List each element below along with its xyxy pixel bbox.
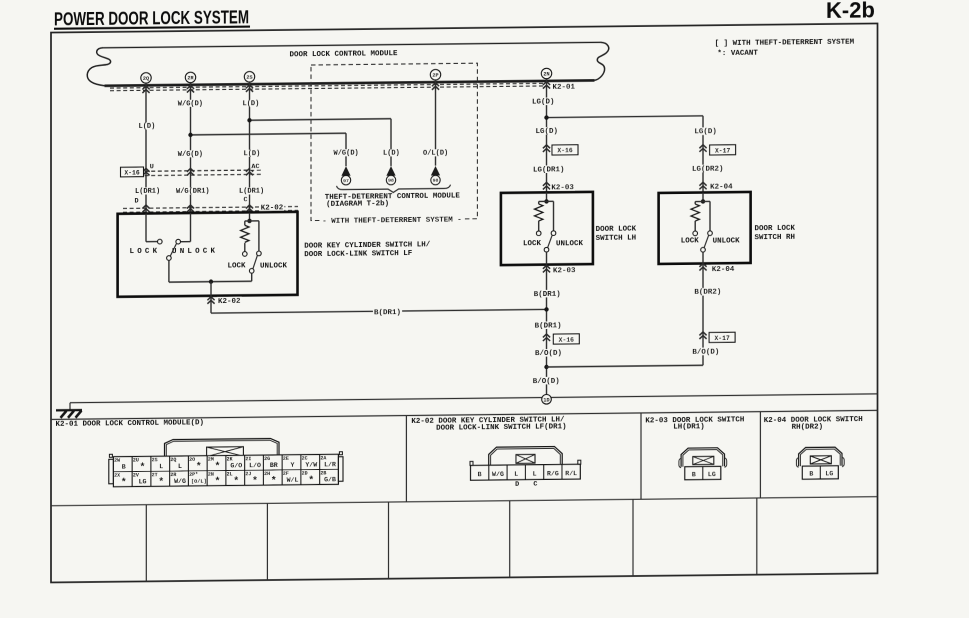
svg-text:2P*: 2P* <box>189 472 198 478</box>
svg-text:*: * <box>215 476 221 488</box>
svg-text:2N: 2N <box>543 71 549 77</box>
svg-text:B: B <box>692 471 696 478</box>
svg-text:W/L: W/L <box>287 477 299 484</box>
svg-text:2G: 2G <box>264 456 270 462</box>
svg-text:B/O(D): B/O(D) <box>533 378 560 386</box>
svg-text:W/G(D): W/G(D) <box>178 151 203 159</box>
svg-text:W/G(D): W/G(D) <box>334 150 359 158</box>
svg-text:LG: LG <box>825 470 833 477</box>
svg-text:G/O: G/O <box>230 463 242 470</box>
svg-text:K2-01: K2-01 <box>553 84 576 92</box>
svg-text:X-17: X-17 <box>714 335 730 342</box>
svg-text:B(DR1): B(DR1) <box>534 291 561 299</box>
svg-text:W/G: W/G <box>174 478 186 485</box>
svg-text:LOCK: LOCK <box>130 248 161 256</box>
svg-text:R/L: R/L <box>565 470 577 477</box>
svg-text:*: * <box>233 476 239 488</box>
svg-text:LOCK: LOCK <box>681 237 700 245</box>
svg-text:[O/L]: [O/L] <box>191 479 207 485</box>
svg-text:LG(D): LG(D) <box>536 128 559 136</box>
svg-text:*: * <box>271 475 277 487</box>
svg-text:LOCK: LOCK <box>523 240 542 248</box>
svg-text:W/G(DR1): W/G(DR1) <box>176 188 210 196</box>
svg-text:L/R: L/R <box>324 462 336 469</box>
svg-text:B: B <box>122 464 126 471</box>
svg-text:L(D): L(D) <box>244 150 261 158</box>
svg-text:2R: 2R <box>187 75 194 81</box>
svg-text:D: D <box>515 481 519 489</box>
svg-text:*: * <box>158 477 164 489</box>
svg-text:LG(D): LG(D) <box>532 98 555 106</box>
svg-text:DOOR LOCK CONTROL MODULE: DOOR LOCK CONTROL MODULE <box>289 50 398 59</box>
svg-text:BR: BR <box>270 462 278 469</box>
svg-text:- WITH THEFT-DETERRENT SYSTEM: - WITH THEFT-DETERRENT SYSTEM - <box>322 216 462 226</box>
svg-text:B(DR2): B(DR2) <box>694 289 721 297</box>
svg-text:SWITCH RH: SWITCH RH <box>755 234 796 242</box>
svg-text:L(D): L(D) <box>139 123 156 131</box>
svg-text:LG(DR1): LG(DR1) <box>533 166 565 174</box>
svg-text:2O: 2O <box>189 457 195 463</box>
svg-text:2V: 2V <box>133 472 139 478</box>
svg-text:L(DR1): L(DR1) <box>135 188 160 196</box>
svg-text:2Q: 2Q <box>170 457 176 463</box>
svg-text:L: L <box>159 463 163 470</box>
svg-text:X-16: X-16 <box>557 147 573 154</box>
svg-text:2W: 2W <box>114 457 120 463</box>
svg-text:[ ] WITH THEFT-DETERRENT SYSTE: [ ] WITH THEFT-DETERRENT SYSTEM <box>715 39 855 49</box>
svg-text:U: U <box>150 163 154 171</box>
svg-text:2S: 2S <box>246 75 252 81</box>
svg-text:B(DR1): B(DR1) <box>535 322 562 330</box>
svg-text:X-17: X-17 <box>715 147 731 154</box>
svg-text:98: 98 <box>388 178 394 184</box>
svg-text:LOCK: LOCK <box>228 262 247 270</box>
svg-text:2D: 2D <box>302 470 308 476</box>
svg-text:2N: 2N <box>208 471 214 477</box>
svg-text:L: L <box>178 463 182 470</box>
svg-text:DOOR LOCK-LINK SWITCH LF: DOOR LOCK-LINK SWITCH LF <box>304 250 413 259</box>
svg-text:2B: 2B <box>320 470 326 476</box>
svg-text:K2-02: K2-02 <box>218 298 241 306</box>
svg-text:2L: 2L <box>227 471 233 477</box>
svg-text:L: L <box>514 471 518 478</box>
svg-text:O/L(D): O/L(D) <box>423 150 448 158</box>
svg-text:X-16: X-16 <box>124 169 140 176</box>
svg-text:*: * <box>215 461 221 473</box>
svg-text:C: C <box>533 481 537 489</box>
svg-text:K2-04: K2-04 <box>710 183 733 191</box>
svg-text:LG(DR2): LG(DR2) <box>692 165 724 173</box>
svg-text:R/G: R/G <box>547 470 559 477</box>
svg-text:2J: 2J <box>245 471 251 477</box>
svg-text:SWITCH LH: SWITCH LH <box>596 234 637 242</box>
svg-text:L: L <box>533 471 537 478</box>
svg-text:K2-04: K2-04 <box>712 266 735 274</box>
svg-text:2C: 2C <box>302 455 308 461</box>
svg-text:LH(DR1): LH(DR1) <box>673 423 705 431</box>
svg-text:W/G: W/G <box>492 471 504 478</box>
svg-text:Y: Y <box>291 462 295 469</box>
svg-text:B/O(D): B/O(D) <box>535 350 562 358</box>
svg-text:DOOR LOCK-LINK SWITCH LF(DR1): DOOR LOCK-LINK SWITCH LF(DR1) <box>436 423 567 432</box>
svg-text:2R: 2R <box>170 472 176 478</box>
svg-text:*: VACANT: *: VACANT <box>717 50 758 58</box>
svg-text:(DIAGRAM T-2b): (DIAGRAM T-2b) <box>326 200 389 209</box>
svg-text:1D: 1D <box>543 397 549 403</box>
svg-text:*: * <box>121 477 127 489</box>
svg-text:B: B <box>809 471 813 478</box>
svg-text:2K: 2K <box>227 456 233 462</box>
svg-text:97: 97 <box>343 178 349 184</box>
svg-text:K2-01 DOOR LOCK CONTROL MODULE: K2-01 DOOR LOCK CONTROL MODULE(D) <box>56 419 205 429</box>
svg-text:UNLOCK: UNLOCK <box>260 262 288 270</box>
svg-text:DOOR LOCK: DOOR LOCK <box>596 226 637 234</box>
svg-text:L/O: L/O <box>249 462 261 469</box>
svg-text:D: D <box>135 197 139 205</box>
svg-text:2M: 2M <box>208 456 214 462</box>
svg-text:*: * <box>252 476 258 488</box>
svg-text:2E: 2E <box>283 456 289 462</box>
svg-text:RH(DR2): RH(DR2) <box>792 423 824 431</box>
svg-text:L(D): L(D) <box>383 150 400 158</box>
svg-text:L(D): L(D) <box>243 100 260 108</box>
svg-text:2I: 2I <box>245 456 251 462</box>
svg-text:G/B: G/B <box>324 477 336 484</box>
svg-text:DOOR LOCK: DOOR LOCK <box>755 225 796 233</box>
svg-text:UNLOCK: UNLOCK <box>713 237 741 245</box>
svg-text:2Q: 2Q <box>143 76 149 82</box>
svg-text:C: C <box>244 196 248 204</box>
svg-text:B: B <box>478 471 482 478</box>
svg-text:*: * <box>140 462 146 474</box>
svg-text:UNLOCK: UNLOCK <box>172 247 218 256</box>
svg-text:*: * <box>308 475 314 487</box>
svg-text:2U: 2U <box>133 457 139 463</box>
svg-text:98: 98 <box>433 178 439 184</box>
svg-text:LG: LG <box>708 471 716 478</box>
svg-text:K-2b: K-2b <box>826 0 875 23</box>
svg-text:2H: 2H <box>264 471 270 477</box>
svg-text:2F: 2F <box>283 471 289 477</box>
svg-text:Y/W: Y/W <box>305 462 317 469</box>
svg-text:L(DR1): L(DR1) <box>239 188 264 196</box>
svg-text:LG(D): LG(D) <box>694 128 717 136</box>
svg-text:UNLOCK: UNLOCK <box>556 240 584 248</box>
svg-text:K2-03: K2-03 <box>553 267 576 275</box>
svg-text:2T: 2T <box>152 472 158 478</box>
svg-text:2P: 2P <box>432 73 438 79</box>
svg-text:LG: LG <box>139 479 147 486</box>
svg-text:B/O(D): B/O(D) <box>692 348 719 356</box>
svg-text:AC: AC <box>251 163 259 171</box>
svg-text:2S: 2S <box>152 457 158 463</box>
svg-text:2A: 2A <box>320 455 326 461</box>
svg-text:W/G(D): W/G(D) <box>178 100 203 108</box>
svg-text:B(DR1): B(DR1) <box>374 309 401 317</box>
svg-text:2X: 2X <box>114 472 120 478</box>
svg-text:X-16: X-16 <box>559 336 575 343</box>
